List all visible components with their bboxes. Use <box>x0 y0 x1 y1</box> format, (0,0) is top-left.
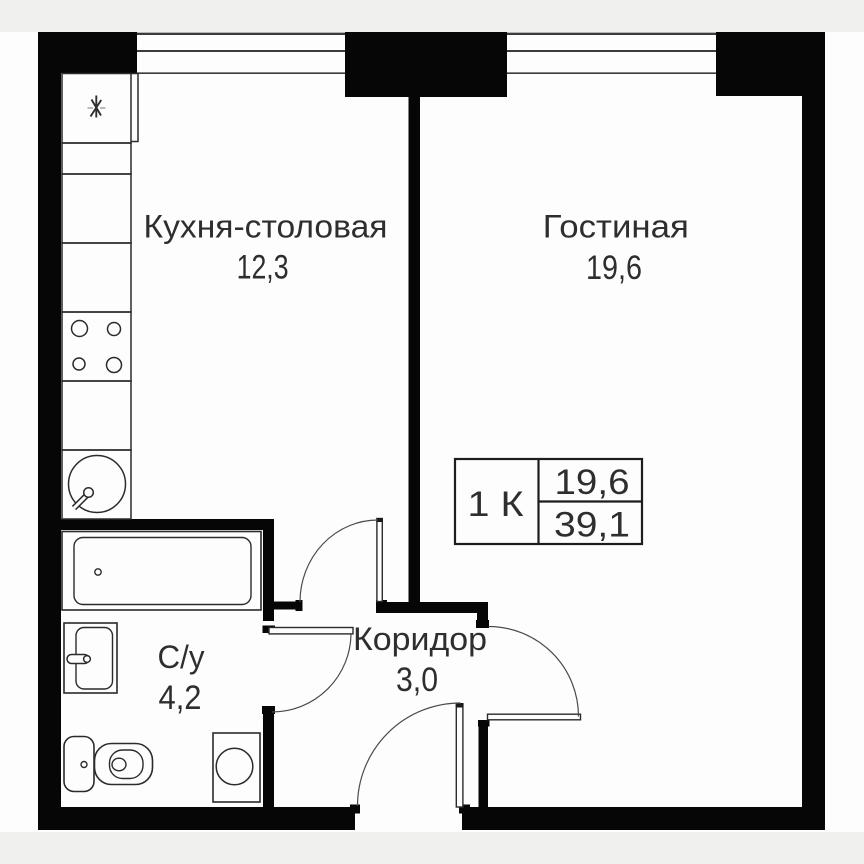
svg-text:С/у: С/у <box>158 639 205 675</box>
svg-text:3,0: 3,0 <box>396 661 438 699</box>
svg-text:39,1: 39,1 <box>554 506 630 545</box>
svg-text:19,6: 19,6 <box>586 249 642 287</box>
svg-text:1 К: 1 К <box>468 485 525 524</box>
svg-text:Коридор: Коридор <box>353 621 487 657</box>
svg-text:19,6: 19,6 <box>555 463 630 502</box>
svg-text:12,3: 12,3 <box>237 249 289 287</box>
svg-text:Гостиная: Гостиная <box>543 209 689 245</box>
svg-text:Кухня-столовая: Кухня-столовая <box>144 209 388 245</box>
svg-text:4,2: 4,2 <box>159 679 202 717</box>
